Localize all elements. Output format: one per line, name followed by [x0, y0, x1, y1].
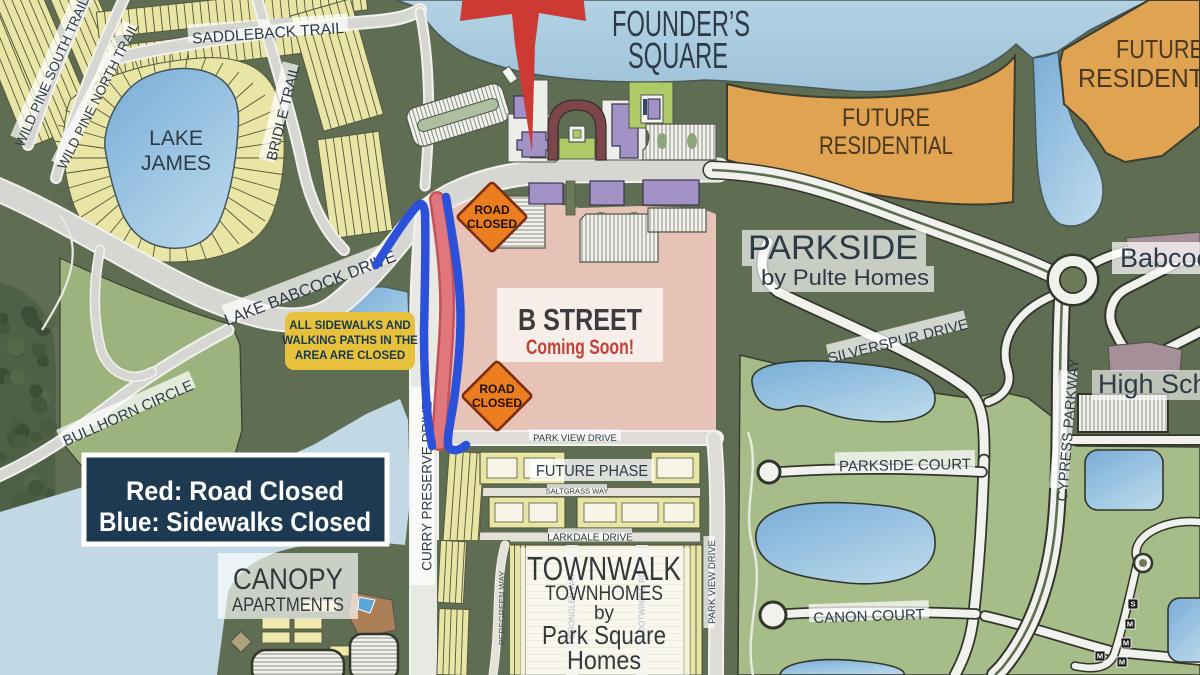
svg-text:RESIDENTIAL: RESIDENTIAL	[819, 132, 953, 160]
svg-text:JAMES: JAMES	[141, 152, 211, 175]
svg-text:PARKSIDE COURT: PARKSIDE COURT	[839, 456, 971, 475]
svg-text:AREA ARE CLOSED: AREA ARE CLOSED	[295, 350, 405, 362]
svg-text:PARK VIEW DRIVE: PARK VIEW DRIVE	[707, 540, 718, 624]
svg-text:RESIDENT: RESIDENT	[1078, 63, 1200, 93]
svg-text:B STREET: B STREET	[518, 302, 642, 337]
svg-text:M: M	[1119, 658, 1125, 667]
svg-text:Homes: Homes	[567, 645, 641, 675]
svg-text:LAKE: LAKE	[149, 127, 203, 150]
svg-text:LARKDALE DRIVE: LARKDALE DRIVE	[547, 532, 633, 543]
svg-text:PEREGREEN WAY: PEREGREEN WAY	[497, 571, 507, 645]
svg-text:PARKSIDE: PARKSIDE	[748, 229, 918, 267]
svg-text:APARTMENTS: APARTMENTS	[232, 595, 344, 616]
svg-text:Blue: Sidewalks Closed: Blue: Sidewalks Closed	[99, 507, 371, 537]
svg-text:CANOPY: CANOPY	[233, 563, 343, 596]
svg-text:High Scho: High Scho	[1098, 369, 1200, 399]
svg-text:FUTURE PHASE: FUTURE PHASE	[536, 463, 648, 480]
svg-text:ALL SIDEWALKS AND: ALL SIDEWALKS AND	[289, 320, 410, 332]
svg-text:SALTGRASS WAY: SALTGRASS WAY	[546, 487, 609, 496]
svg-text:FUTURE: FUTURE	[842, 104, 930, 132]
svg-text:CLOSED: CLOSED	[467, 217, 517, 231]
svg-text:PARK VIEW DRIVE: PARK VIEW DRIVE	[533, 433, 617, 444]
svg-text:SQUARE: SQUARE	[628, 35, 728, 76]
svg-text:M: M	[1123, 639, 1129, 648]
svg-text:TOWNHOMES: TOWNHOMES	[545, 582, 663, 605]
svg-text:FUTURE: FUTURE	[1116, 34, 1200, 64]
svg-text:WALKING PATHS IN THE: WALKING PATHS IN THE	[282, 335, 418, 347]
svg-text:Babcock: Babcock	[1120, 243, 1200, 273]
svg-text:ROAD: ROAD	[479, 382, 515, 396]
svg-text:by Pulte Homes: by Pulte Homes	[761, 265, 929, 290]
svg-text:Coming Soon!: Coming Soon!	[526, 336, 634, 359]
svg-text:Red: Road Closed: Red: Road Closed	[126, 476, 344, 506]
svg-text:M: M	[1097, 652, 1103, 661]
svg-text:CLOSED: CLOSED	[472, 396, 522, 410]
svg-text:M: M	[1127, 620, 1133, 629]
svg-text:ROAD: ROAD	[474, 203, 510, 217]
svg-text:S: S	[1130, 600, 1135, 609]
